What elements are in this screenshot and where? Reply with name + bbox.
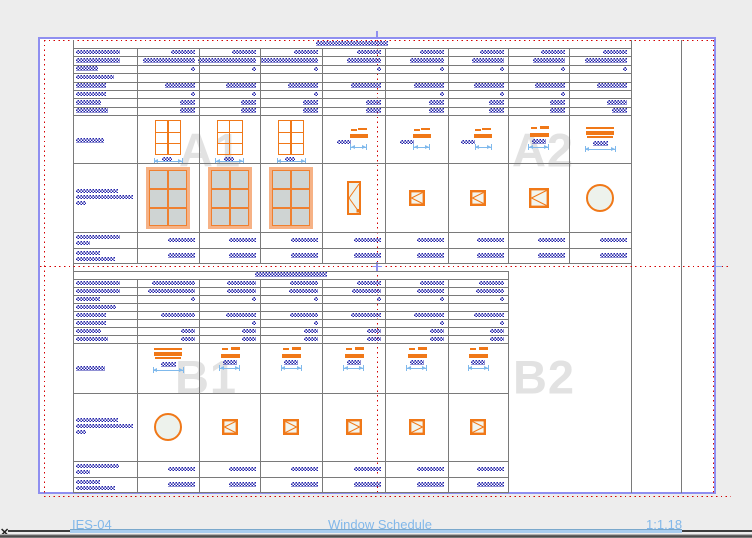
cell-value — [474, 313, 504, 318]
detail-symbol — [222, 348, 228, 350]
cell-value — [152, 281, 195, 286]
cell-value — [414, 313, 444, 318]
window-plan-symbol — [470, 190, 486, 206]
row-label — [76, 366, 105, 371]
dimension-arrow — [297, 366, 301, 370]
cell-value — [366, 100, 381, 105]
detail-symbol — [221, 354, 240, 358]
table-grid-line — [73, 295, 509, 296]
table-grid-line — [73, 303, 509, 304]
table-grid-line — [137, 48, 138, 263]
cell-value — [472, 58, 504, 63]
detail-symbol — [358, 128, 367, 131]
cell-value — [480, 50, 504, 55]
cell-value — [541, 50, 565, 55]
dimension-arrow — [359, 366, 363, 370]
window-render-mullion — [167, 170, 169, 226]
row-label — [76, 418, 118, 423]
margin-dotted-left — [44, 40, 45, 494]
cell-tick — [314, 321, 318, 325]
cell-value — [600, 238, 627, 243]
detail-symbol — [586, 131, 614, 135]
cell-tick — [500, 321, 504, 325]
detail-symbol — [587, 136, 613, 138]
row-label — [76, 83, 106, 88]
cell-value — [180, 108, 195, 113]
dimension-arrow — [422, 366, 426, 370]
detail-symbol — [530, 133, 549, 137]
zone-watermark: B2 — [513, 350, 575, 405]
detail-symbol — [408, 354, 427, 358]
row-label — [76, 464, 119, 469]
detail-symbol — [154, 348, 182, 350]
cell-tick — [191, 92, 195, 96]
cell-value — [168, 238, 195, 243]
table-grid-line — [385, 279, 386, 492]
table-grid-line — [199, 48, 200, 263]
detail-symbol — [421, 128, 430, 131]
horizontal-scrollbar-thumb[interactable] — [70, 529, 682, 533]
cell-value — [366, 108, 381, 113]
table-grid-line — [73, 319, 509, 320]
dimension-arrow — [414, 145, 418, 149]
cell-tick — [377, 67, 381, 71]
row-label — [76, 289, 120, 294]
detail-label — [461, 140, 475, 145]
window-elevation-mullion — [229, 120, 231, 155]
cell-value — [477, 467, 504, 472]
cell-value — [417, 482, 444, 487]
elevation-label — [285, 157, 295, 161]
detail-label — [471, 360, 485, 365]
table-grid-line — [199, 279, 200, 492]
cell-value — [417, 253, 444, 258]
table-grid-line — [73, 279, 74, 492]
detail-label — [223, 360, 237, 365]
detail-symbol — [470, 348, 476, 350]
cell-value — [490, 337, 504, 342]
detail-symbol — [474, 134, 492, 138]
row-label — [76, 100, 101, 105]
cell-value — [161, 313, 195, 318]
dimension-arrow — [235, 366, 239, 370]
dimension-tick — [239, 365, 240, 371]
cell-value — [290, 281, 318, 286]
detail-symbol — [586, 127, 614, 129]
table-grid-line — [73, 73, 632, 74]
dimension-arrow — [475, 145, 479, 149]
cell-value — [600, 253, 627, 258]
window-render-mullion — [211, 188, 249, 190]
cell-value — [229, 467, 256, 472]
cell-value — [168, 482, 195, 487]
cell-tick — [500, 92, 504, 96]
cell-value — [181, 337, 195, 342]
row-label — [76, 251, 100, 256]
cell-value — [304, 337, 318, 342]
row-label — [76, 235, 120, 240]
row-label — [76, 75, 114, 80]
cell-value — [538, 253, 565, 258]
detail-symbol — [482, 128, 491, 131]
table-grid-line — [448, 48, 449, 263]
window-render-mullion — [272, 188, 310, 190]
cell-value — [354, 253, 381, 258]
cell-value — [414, 83, 444, 88]
table-grid-line — [508, 271, 509, 279]
cell-value — [354, 482, 381, 487]
viewer-canvas: A1A2B1B2 IES-04 Window Schedule 1:1.18 ✕ — [0, 0, 752, 538]
table-grid-line — [73, 393, 509, 394]
quadrant-right-tick — [714, 266, 722, 268]
cell-value — [198, 58, 256, 63]
detail-symbol — [414, 129, 420, 131]
cell-value — [148, 289, 195, 294]
cell-tick — [440, 297, 444, 301]
cell-value — [476, 289, 504, 294]
dimension-arrow — [468, 366, 472, 370]
cell-value — [165, 83, 195, 88]
dimension-tick — [488, 365, 489, 371]
quadrant-top-tick — [376, 31, 378, 37]
window-elevation-mullion — [155, 132, 181, 133]
cell-value — [420, 50, 444, 55]
cell-value — [479, 281, 504, 286]
window-plan-symbol — [222, 419, 238, 435]
cell-value — [171, 50, 195, 55]
detail-symbol — [154, 352, 182, 356]
cell-value — [490, 329, 504, 334]
table-grid-line — [73, 107, 632, 108]
cell-value — [535, 83, 565, 88]
cell-value — [585, 58, 627, 63]
dimension-arrow — [484, 366, 488, 370]
cell-value — [354, 238, 381, 243]
cell-tick — [314, 67, 318, 71]
cell-tick — [252, 297, 256, 301]
cell-value — [538, 238, 565, 243]
row-label — [76, 486, 115, 491]
cell-tick — [500, 297, 504, 301]
row-label — [76, 108, 108, 113]
detail-symbol — [283, 348, 289, 350]
cell-tick — [314, 297, 318, 301]
window-render-mullion — [290, 170, 292, 226]
window-bottom-edge — [0, 534, 752, 538]
detail-symbol — [409, 348, 415, 350]
margin-dotted-right — [713, 40, 714, 494]
detail-label — [337, 140, 351, 145]
cell-value — [291, 467, 318, 472]
dimension-arrow — [585, 147, 589, 151]
cell-value — [347, 58, 381, 63]
cell-tick — [500, 67, 504, 71]
dimension-tick — [366, 144, 367, 150]
table-grid-line — [73, 461, 509, 462]
table-grid-line — [73, 492, 509, 493]
table-grid-line — [73, 90, 632, 91]
cell-value — [181, 329, 195, 334]
row-label — [76, 297, 100, 302]
detail-label — [161, 362, 176, 367]
cell-tick — [561, 67, 565, 71]
window-plan-symbol — [346, 419, 362, 435]
detail-symbol — [531, 127, 537, 129]
dimension-tick — [363, 365, 364, 371]
dimension-arrow — [220, 366, 224, 370]
dimension-tick — [301, 365, 302, 371]
dimension-tick — [615, 146, 616, 152]
cell-value — [289, 289, 318, 294]
row-label — [76, 92, 106, 97]
window-plan-symbol — [409, 190, 425, 206]
row-label — [76, 281, 120, 286]
window-elevation-mullion — [278, 132, 304, 133]
cell-value — [354, 467, 381, 472]
cell-value — [291, 253, 318, 258]
window-elevation-mullion — [167, 120, 169, 155]
table-grid-line — [73, 48, 74, 263]
cell-value — [229, 253, 256, 258]
cell-value — [429, 108, 444, 113]
cell-value — [242, 329, 256, 334]
row-label — [76, 470, 90, 475]
table-grid-line — [73, 232, 632, 233]
dimension-tick — [548, 144, 549, 150]
round-window-symbol — [586, 184, 614, 212]
table-grid-line — [73, 263, 632, 264]
table-grid-line — [73, 65, 632, 66]
table-title — [316, 41, 388, 46]
detail-symbol — [413, 134, 431, 138]
cell-tick — [191, 67, 195, 71]
cell-value — [229, 238, 256, 243]
row-label — [76, 257, 115, 262]
zone-watermark: A2 — [512, 123, 574, 178]
cell-value — [232, 50, 256, 55]
window-plan-symbol — [283, 419, 299, 435]
cell-tick — [252, 92, 256, 96]
row-label — [76, 241, 90, 246]
row-label — [76, 201, 86, 206]
detail-symbol — [418, 347, 427, 350]
dimension-tick — [183, 367, 184, 373]
cell-value — [303, 100, 318, 105]
cell-value — [351, 83, 381, 88]
dimension-arrow — [344, 366, 348, 370]
cell-value — [417, 467, 444, 472]
table-grid-line — [73, 115, 632, 116]
cell-value — [357, 50, 381, 55]
table-grid-line — [73, 248, 632, 249]
cell-value — [607, 100, 627, 105]
table-grid-line — [322, 279, 323, 492]
dimension-tick — [429, 144, 430, 150]
dimension-arrow — [425, 145, 429, 149]
cell-tick — [377, 297, 381, 301]
row-label — [76, 424, 133, 429]
dimension-tick — [426, 365, 427, 371]
cell-value — [430, 329, 444, 334]
detail-label — [593, 141, 608, 146]
table-grid-line — [73, 163, 632, 164]
detail-symbol — [479, 347, 488, 350]
cell-value — [291, 238, 318, 243]
row-label — [76, 337, 108, 342]
detail-symbol — [540, 126, 549, 129]
window-elevation-mullion — [217, 132, 243, 133]
table-title — [255, 272, 327, 277]
cell-value — [227, 281, 256, 286]
cell-tick — [252, 67, 256, 71]
detail-symbol — [351, 129, 357, 131]
row-label — [76, 313, 106, 318]
elevation-label — [224, 157, 234, 161]
table-grid-line — [508, 279, 509, 492]
dimension-arrow — [611, 147, 615, 151]
cell-value — [477, 238, 504, 243]
cell-value — [417, 238, 444, 243]
row-label — [76, 58, 120, 63]
cell-value — [288, 83, 318, 88]
cell-tick — [314, 92, 318, 96]
cell-tick — [561, 92, 565, 96]
window-render-mullion — [149, 207, 187, 209]
cell-tick — [623, 67, 627, 71]
dimension-arrow — [351, 145, 355, 149]
cell-value — [352, 289, 381, 294]
cell-value — [533, 58, 565, 63]
dimension-arrow — [487, 145, 491, 149]
margin-dotted-bottom — [44, 496, 731, 497]
window-elevation-mullion — [290, 120, 292, 155]
table-grid-line — [385, 48, 386, 263]
detail-label — [532, 139, 546, 144]
window-plan-symbol — [409, 419, 425, 435]
table-grid-line — [448, 279, 449, 492]
row-label — [76, 66, 98, 71]
window-elevation-mullion — [217, 143, 243, 144]
dimension-arrow — [153, 368, 157, 372]
cell-value — [226, 313, 256, 318]
cell-value — [550, 108, 565, 113]
window-render-mullion — [229, 170, 231, 226]
cell-value — [229, 482, 256, 487]
detail-symbol — [292, 347, 301, 350]
table-grid-line — [569, 48, 570, 263]
dimension-tick — [491, 144, 492, 150]
cell-value — [291, 482, 318, 487]
cell-tick — [440, 321, 444, 325]
cell-value — [367, 329, 381, 334]
table-grid-line — [73, 271, 509, 272]
cell-value — [477, 253, 504, 258]
window-elevation-mullion — [278, 143, 304, 144]
detail-symbol — [345, 354, 364, 358]
cell-value — [168, 253, 195, 258]
table-grid-line — [73, 343, 509, 344]
row-label — [76, 329, 101, 334]
round-window-symbol — [154, 413, 182, 441]
cell-value — [597, 83, 627, 88]
cell-value — [603, 50, 627, 55]
cell-value — [227, 289, 256, 294]
casement-side-view — [347, 181, 361, 215]
row-label — [76, 305, 116, 310]
table-grid-line — [73, 98, 632, 99]
cell-value — [242, 337, 256, 342]
table-grid-line — [631, 48, 632, 263]
row-label — [76, 138, 104, 143]
detail-label — [284, 360, 298, 365]
cell-value — [429, 100, 444, 105]
row-label — [76, 480, 100, 485]
window-plan-symbol — [529, 188, 549, 208]
cell-value — [489, 108, 504, 113]
row-label — [76, 50, 120, 55]
cell-tick — [440, 67, 444, 71]
dimension-arrow — [179, 368, 183, 372]
window-render-mullion — [149, 188, 187, 190]
cell-value — [180, 100, 195, 105]
detail-symbol — [231, 347, 240, 350]
cell-value — [260, 58, 318, 63]
cell-value — [241, 108, 256, 113]
dimension-arrow — [407, 366, 411, 370]
detail-label — [400, 140, 414, 145]
cell-value — [304, 329, 318, 334]
cell-value — [417, 289, 444, 294]
cell-value — [410, 58, 444, 63]
cell-tick — [252, 321, 256, 325]
table-grid-line — [260, 279, 261, 492]
detail-symbol — [346, 348, 352, 350]
cell-value — [357, 281, 381, 286]
cell-value — [241, 100, 256, 105]
row-label — [76, 430, 86, 435]
dimension-arrow — [544, 145, 548, 149]
cell-value — [474, 83, 504, 88]
cell-value — [168, 467, 195, 472]
cell-value — [477, 482, 504, 487]
cell-value — [351, 313, 381, 318]
dimension-arrow — [362, 145, 366, 149]
window-render-mullion — [211, 207, 249, 209]
table-grid-line — [73, 477, 509, 478]
cell-value — [612, 108, 627, 113]
detail-label — [347, 360, 361, 365]
detail-symbol — [350, 134, 368, 138]
table-grid-line — [322, 48, 323, 263]
detail-symbol — [155, 357, 181, 359]
cell-value — [550, 100, 565, 105]
table-grid-line — [260, 48, 261, 263]
row-label — [76, 321, 106, 326]
cell-value — [290, 313, 318, 318]
row-label — [76, 189, 118, 194]
table-grid-line — [73, 271, 74, 279]
window-plan-symbol — [470, 419, 486, 435]
window-render-mullion — [272, 207, 310, 209]
cell-value — [303, 108, 318, 113]
cell-value — [143, 58, 195, 63]
detail-symbol — [282, 354, 301, 358]
cell-value — [420, 281, 444, 286]
table-grid-line — [508, 48, 509, 263]
cell-value — [226, 83, 256, 88]
row-label — [76, 195, 133, 200]
window-elevation-mullion — [155, 143, 181, 144]
